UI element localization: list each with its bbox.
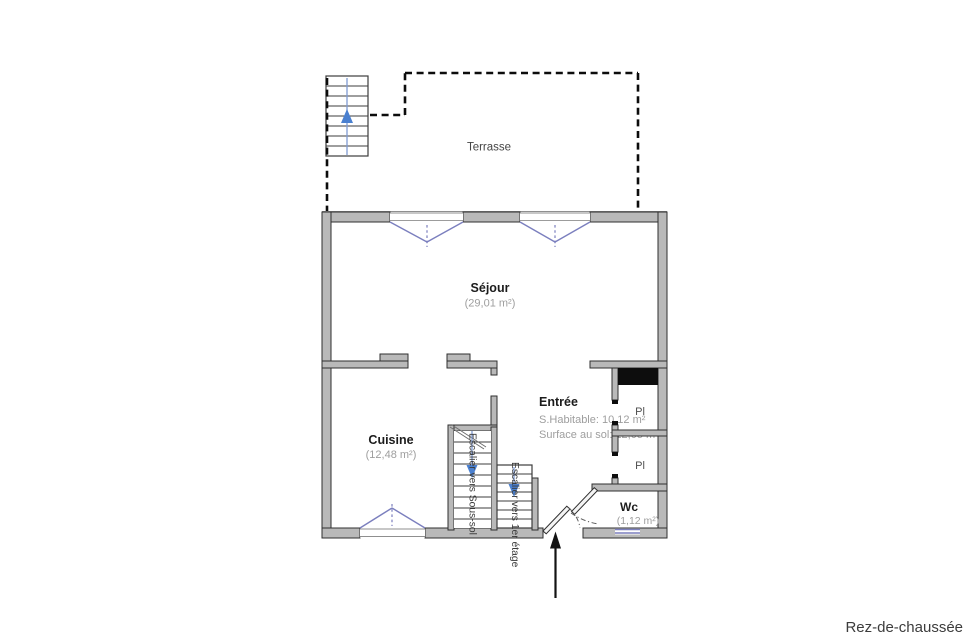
floor-plan-page: Entrée S.Habitable: 10,12 m² Surface au … bbox=[0, 0, 980, 644]
chimney-block bbox=[618, 368, 658, 385]
sejour-name: Séjour bbox=[471, 281, 510, 295]
sejour-area: (29,01 m²) bbox=[465, 298, 516, 310]
wc-door-leaf bbox=[572, 488, 598, 515]
floor-plan-drawing: Entrée S.Habitable: 10,12 m² Surface au … bbox=[0, 0, 980, 644]
sejour-window-left bbox=[390, 222, 463, 247]
sejour-window-right bbox=[520, 222, 590, 247]
terrace-label: Terrasse bbox=[467, 142, 511, 154]
closet1-door-jamb bbox=[612, 400, 618, 404]
cuisine-window bbox=[360, 504, 425, 528]
closet1-door-jamb bbox=[612, 421, 618, 425]
terrace-stairs bbox=[326, 76, 368, 156]
first-floor-stairs-label: Escalier vers 1er étage bbox=[509, 462, 520, 568]
closet2-label: Pl bbox=[635, 460, 645, 472]
entree-name: Entrée bbox=[539, 395, 578, 409]
wc-name: Wc bbox=[620, 500, 638, 514]
basement-stairs-label: Escalier vers Sous-sol bbox=[467, 433, 478, 535]
door-swing-arc bbox=[571, 513, 599, 524]
entrance-door bbox=[543, 488, 599, 534]
entrance-door-leaf bbox=[543, 506, 570, 534]
cuisine-name: Cuisine bbox=[368, 433, 413, 447]
closet2-door-jamb bbox=[612, 474, 618, 478]
entree-habitable-area: S.Habitable: 10,12 m² bbox=[539, 414, 646, 426]
cuisine-area: (12,48 m²) bbox=[366, 449, 417, 461]
basement-stairs: Escalier vers Sous-sol bbox=[450, 425, 491, 535]
wc-area: (1,12 m²) bbox=[617, 515, 660, 527]
first-floor-stairs: Escalier vers 1er étage bbox=[497, 462, 532, 568]
floor-title: Rez-de-chaussée bbox=[845, 619, 963, 636]
closet2-door-jamb bbox=[612, 452, 618, 456]
entrance-arrow-icon bbox=[550, 532, 561, 599]
closet1-label: Pl bbox=[635, 406, 645, 418]
walls bbox=[322, 211, 667, 538]
wc-window bbox=[615, 529, 640, 535]
